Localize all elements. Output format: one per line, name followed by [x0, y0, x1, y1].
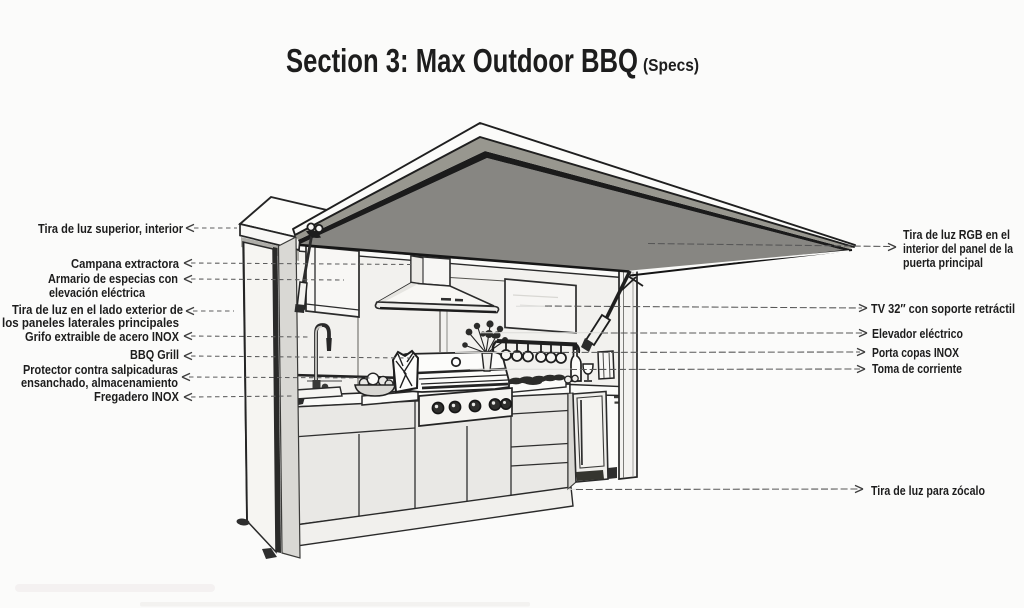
svg-text:elevación eléctrica: elevación eléctrica: [49, 285, 146, 300]
svg-text:puerta principal: puerta principal: [903, 255, 983, 270]
svg-text:interior del panel de la: interior del panel de la: [903, 241, 1014, 256]
svg-text:Tira de luz para zócalo: Tira de luz para zócalo: [871, 483, 985, 498]
svg-text:Fregadero INOX: Fregadero INOX: [94, 389, 179, 404]
svg-text:Armario de especias con: Armario de especias con: [48, 271, 178, 286]
svg-text:Campana extractora: Campana extractora: [71, 256, 180, 271]
svg-text:Tira de luz RGB en el: Tira de luz RGB en el: [903, 227, 1010, 242]
svg-text:BBQ Grill: BBQ Grill: [130, 347, 179, 362]
svg-text:Toma de corriente: Toma de corriente: [872, 361, 962, 376]
svg-text:TV 32″ con soporte retráctil: TV 32″ con soporte retráctil: [871, 301, 1015, 316]
svg-text:ensanchado, almacenamiento: ensanchado, almacenamiento: [21, 375, 178, 390]
svg-text:Elevador eléctrico: Elevador eléctrico: [872, 326, 963, 341]
svg-text:Section 3: Max Outdoor BBQ: Section 3: Max Outdoor BBQ: [286, 43, 638, 80]
svg-text:Grifo extraible de acero INOX: Grifo extraible de acero INOX: [25, 329, 179, 344]
svg-text:Tira de luz superior, interior: Tira de luz superior, interior: [38, 221, 183, 236]
svg-text:los paneles laterales principa: los paneles laterales principales: [2, 315, 179, 330]
svg-text:(Specs): (Specs): [643, 55, 699, 75]
svg-text:Porta copas INOX: Porta copas INOX: [872, 345, 959, 360]
